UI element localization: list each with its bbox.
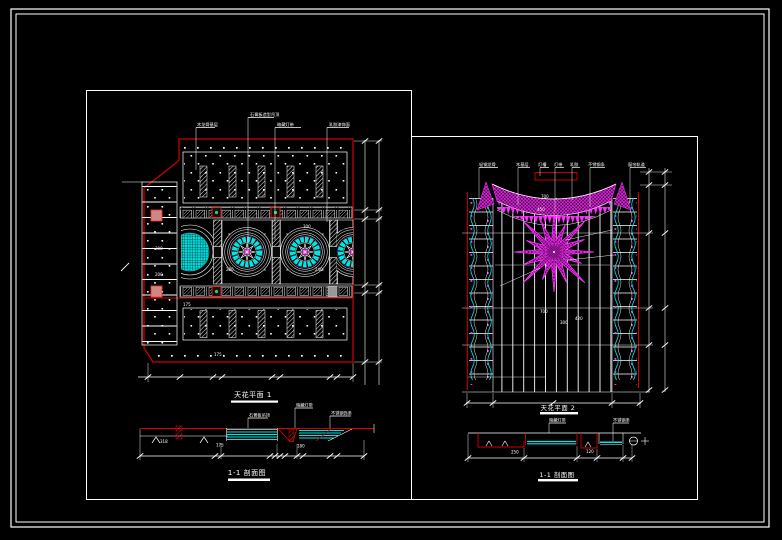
left-ceiling-plan: 300 240 200 175 175 300 200 木龙骨基层 石膏板造型吊… xyxy=(121,111,382,403)
right-plan-title: 天花平面 2 xyxy=(541,403,576,412)
leader-label: 暗藏灯带 xyxy=(549,417,566,424)
leader-label: 石膏板造型吊顶 xyxy=(250,111,280,118)
dim-floor: 420 xyxy=(575,316,583,321)
dim-cells: 200 xyxy=(155,272,163,277)
title-underline xyxy=(540,412,578,414)
meander-band-top xyxy=(180,207,352,218)
dots-row-bottom xyxy=(153,351,349,358)
leader-label: 轻钢龙骨 xyxy=(479,161,496,168)
leader-label: 不锈钢饰条 xyxy=(331,410,353,417)
leader-label: 暗藏灯带 xyxy=(277,121,294,128)
title-underline xyxy=(538,479,578,481)
leader-label: 乳胶漆饰面 xyxy=(329,121,350,128)
dim-floor: 700 xyxy=(540,309,548,314)
dim-floor: 300 xyxy=(560,320,568,325)
pink-square xyxy=(151,210,162,221)
plan-bottom-dimensions xyxy=(138,363,356,382)
leader-label: 不锈钢条 xyxy=(588,161,606,168)
leader-label: 不锈钢条 xyxy=(613,417,631,424)
right-plan-right-dimensions xyxy=(640,168,672,393)
pilaster-strip xyxy=(272,220,280,284)
curtain-left xyxy=(469,198,493,385)
leader-label: 窗帘轨道 xyxy=(628,161,646,168)
title-underline xyxy=(231,401,278,403)
dim-medallion: 300 xyxy=(303,224,311,229)
leader-label: 木龙骨基层 xyxy=(197,121,218,128)
cove-dip xyxy=(278,429,297,442)
dim-section: 250 xyxy=(511,450,519,455)
left-section-detail: 石膏板吊顶 暗藏灯带 不锈钢饰条 318 175 180 1-1 剖面图 xyxy=(137,402,374,482)
dim-section: 175 xyxy=(216,443,224,448)
pilaster-strip xyxy=(214,220,222,284)
cad-drawing-canvas: 300 240 200 175 175 300 200 木龙骨基层 石膏板造型吊… xyxy=(0,0,782,540)
medallion-band: 300 240 200 xyxy=(163,220,378,284)
cad-drawing-svg: 300 240 200 175 175 300 200 木龙骨基层 石膏板造型吊… xyxy=(0,0,782,540)
section-leader-labels: 石膏板吊顶 暗藏灯带 不锈钢饰条 xyxy=(248,402,353,429)
meander-band-bottom xyxy=(180,286,352,297)
dim-medallion: 200 xyxy=(226,267,234,272)
right-section-detail: 暗藏灯带 不锈钢条 250 120 1-1 剖面图 xyxy=(465,417,649,482)
plan-right-dimensions xyxy=(354,138,382,385)
section-dimension-line xyxy=(137,429,367,460)
left-section-title: 1-1 剖面图 xyxy=(228,468,266,477)
dim-band: 175 xyxy=(214,352,222,357)
leader-label: 石膏板吊顶 xyxy=(249,412,271,419)
dim-band: 175 xyxy=(183,302,191,307)
dim-section: 180 xyxy=(297,444,305,449)
dim-swag: 450 xyxy=(537,207,545,212)
leader-label: 木基层 xyxy=(516,161,529,168)
stage-box xyxy=(535,173,577,181)
section-post xyxy=(176,426,182,439)
section-step-right xyxy=(581,433,597,448)
right-section-leaders: 暗藏灯带 不锈钢条 xyxy=(549,417,631,442)
dim-swag: 700 xyxy=(541,194,549,199)
left-cells-column: 300 200 xyxy=(121,182,177,345)
dim-medallion: 240 xyxy=(315,267,323,272)
left-plan-title: 天花平面 1 xyxy=(234,390,272,399)
pink-square xyxy=(151,286,162,297)
dim-section: 318 xyxy=(160,439,168,444)
section-step-left xyxy=(478,433,524,447)
curtain-right xyxy=(613,198,637,385)
dim-cells: 300 xyxy=(155,246,163,251)
pilaster-strip xyxy=(330,220,338,284)
dots-row-top xyxy=(183,142,349,149)
right-section-title: 1-1 剖面图 xyxy=(539,470,574,479)
outer-border xyxy=(11,9,769,527)
leader-label: 灯槽 xyxy=(538,161,547,168)
leader-label: 灯带 xyxy=(554,161,562,168)
right-ceiling-plan: 700 450 700 300 420 轻钢龙骨 木基层 灯槽 灯带 乳胶 不锈… xyxy=(462,161,672,414)
louver-right xyxy=(299,429,352,441)
right-section-dimension-line xyxy=(465,434,635,462)
leader-label: 乳胶 xyxy=(570,161,578,168)
title-underline xyxy=(228,479,270,482)
leader-label: 暗藏灯带 xyxy=(296,402,313,409)
louver-left xyxy=(227,428,278,441)
dim-section: 120 xyxy=(586,449,594,454)
